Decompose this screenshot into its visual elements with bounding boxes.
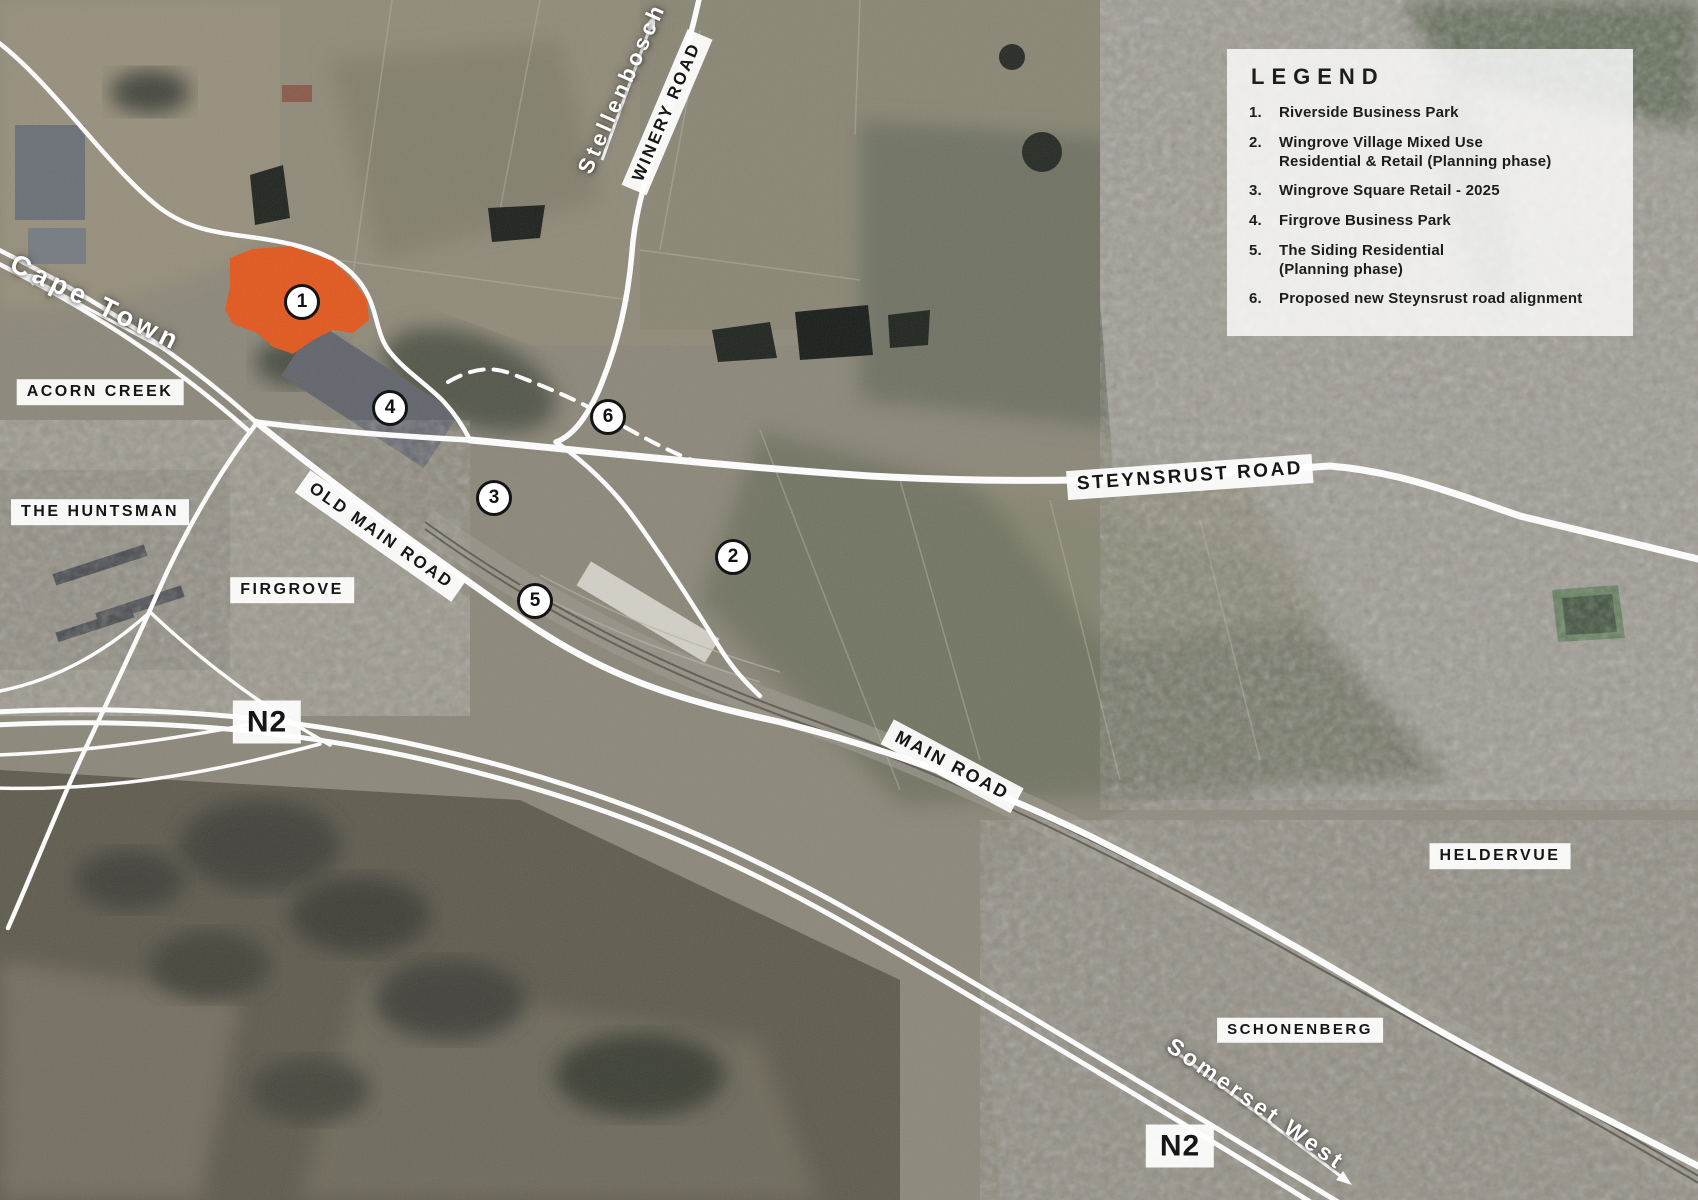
legend-item-number: 4. — [1249, 212, 1279, 231]
legend-item-3: 3. Wingrove Square Retail - 2025 — [1249, 182, 1615, 201]
n2-south-label: N2 — [1146, 1125, 1214, 1168]
legend-item-1: 1. Riverside Business Park — [1249, 104, 1615, 123]
marker-1-riverside-business-park: 1 — [284, 284, 320, 320]
legend-panel: LEGEND 1. Riverside Business Park 2. Win… — [1227, 49, 1633, 336]
legend-item-text: Firgrove Business Park — [1279, 212, 1605, 231]
legend-item-text: Wingrove Square Retail - 2025 — [1279, 182, 1605, 201]
legend-item-text: Riverside Business Park — [1279, 104, 1605, 123]
legend-item-number: 2. — [1249, 134, 1279, 172]
legend-item-text: Proposed new Steynsrust road alignment — [1279, 290, 1605, 309]
legend-item-number: 1. — [1249, 104, 1279, 123]
legend-item-number: 6. — [1249, 290, 1279, 309]
legend-item-text: The Siding Residential (Planning phase) — [1279, 242, 1605, 280]
marker-6-proposed-alignment: 6 — [590, 399, 626, 435]
legend-item-6: 6. Proposed new Steynsrust road alignmen… — [1249, 290, 1615, 309]
legend-item-number: 3. — [1249, 182, 1279, 201]
firgrove-area-label: FIRGROVE — [230, 577, 354, 603]
marker-2-wingrove-village: 2 — [715, 539, 751, 575]
schonenberg-area-label: SCHONENBERG — [1217, 1018, 1383, 1043]
legend-item-4: 4. Firgrove Business Park — [1249, 212, 1615, 231]
marker-5-the-siding: 5 — [517, 583, 553, 619]
marker-3-wingrove-square: 3 — [476, 480, 512, 516]
legend-item-2: 2. Wingrove Village Mixed Use Residentia… — [1249, 134, 1615, 172]
map-canvas: Cape Town Stellenbosch Somerset West WIN… — [0, 0, 1698, 1200]
acorn-creek-area-label: ACORN CREEK — [17, 379, 184, 405]
legend-item-text: Wingrove Village Mixed Use Residential &… — [1279, 134, 1605, 172]
legend-item-number: 5. — [1249, 242, 1279, 280]
n2-west-label: N2 — [233, 701, 301, 744]
marker-4-firgrove-business-park: 4 — [372, 390, 408, 426]
legend-title: LEGEND — [1251, 64, 1615, 90]
the-huntsman-area-label: THE HUNTSMAN — [11, 499, 189, 525]
heldervue-area-label: HELDERVUE — [1430, 843, 1571, 869]
legend-item-5: 5. The Siding Residential (Planning phas… — [1249, 242, 1615, 280]
